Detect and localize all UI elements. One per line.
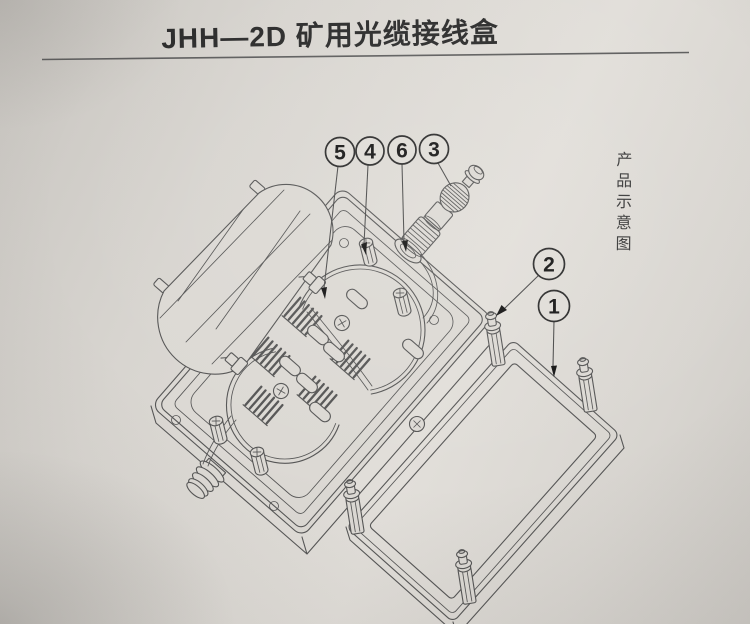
- callout-6-label: 6: [396, 140, 408, 163]
- callout-5-label: 5: [334, 142, 346, 165]
- leader-3: [438, 163, 451, 186]
- callout-3: 3: [420, 135, 449, 164]
- leader-6: [402, 164, 404, 241]
- callout-2-label: 2: [543, 254, 555, 277]
- callout-3-label: 3: [428, 139, 440, 162]
- title-rule: [42, 53, 689, 60]
- frame-side-wall: [346, 435, 624, 624]
- frame-bolt: [453, 548, 477, 604]
- callout-2: 2: [534, 249, 565, 280]
- leader-2-arrow: [496, 305, 507, 316]
- frame-bolt: [574, 356, 598, 412]
- callout-4: 4: [356, 137, 384, 165]
- callout-1-label: 1: [548, 296, 560, 319]
- photographed-page: JHH—2D 矿用光缆接线盒 产品示意图: [0, 0, 750, 624]
- leader-1-arrow: [551, 366, 557, 378]
- leader-1: [553, 321, 554, 366]
- callout-1: 1: [539, 291, 570, 322]
- exploded-parts-diagram: 5 4 6 3 2 1: [0, 0, 750, 624]
- tray-screw-flat: [406, 413, 427, 434]
- callout-4-label: 4: [364, 141, 376, 164]
- callout-6: 6: [388, 136, 416, 164]
- leader-2: [504, 274, 540, 309]
- callout-5: 5: [326, 138, 355, 167]
